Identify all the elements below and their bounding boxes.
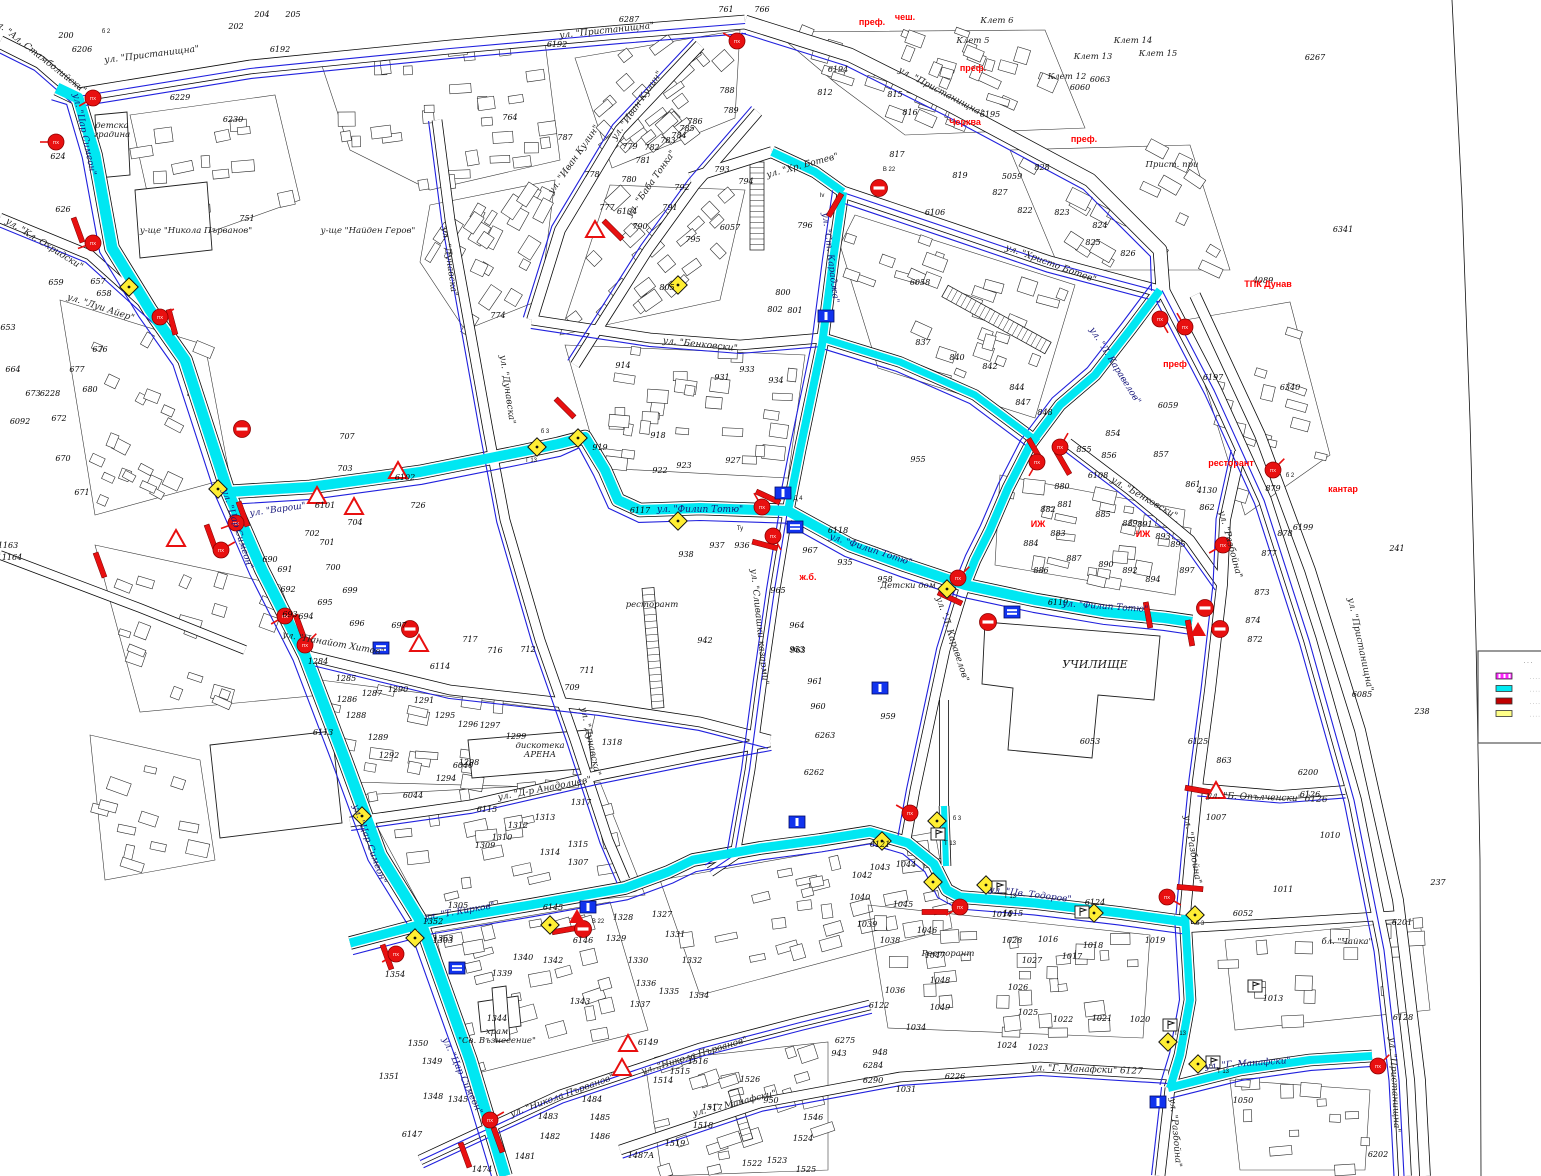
symbol-code-label: б 2 [102, 29, 111, 35]
parcel-number: 1310 [492, 833, 512, 842]
parcel-number: 6040 [453, 761, 473, 770]
landmark-label: бл. "Чайка" [1321, 936, 1372, 947]
parcel-number: 937 [709, 541, 725, 550]
parcel-number: 1524 [793, 1134, 813, 1143]
parcel-number: 677 [69, 365, 85, 374]
parcel-number: 793 [714, 165, 729, 174]
parcel-number: 204 [253, 10, 269, 19]
parcel-number: 1327 [652, 910, 673, 919]
parcel-number: 938 [678, 550, 693, 559]
parcel-number: 931 [714, 373, 729, 382]
parcel-number: 914 [615, 361, 630, 370]
sluice-icon [1004, 606, 1020, 618]
parcel-number: 6229 [170, 93, 190, 102]
parcel-number: 1330 [628, 956, 648, 965]
parcel-number: 1050 [1233, 1096, 1253, 1105]
annotation-label: кантар [1328, 484, 1358, 494]
parcel-number: 704 [347, 518, 362, 527]
parcel-number: 874 [1245, 616, 1260, 625]
parcel-number: 1023 [1028, 1043, 1048, 1052]
hydrant-label: ПХ [770, 534, 776, 539]
building-outline [210, 731, 342, 838]
hydrant-label: ПХ [1182, 325, 1188, 330]
parcel-number: 701 [319, 538, 334, 547]
hydrant-label: ПХ [218, 548, 224, 553]
parcel-number: 5059 [1002, 172, 1022, 181]
annotation-label: преф. [859, 17, 885, 27]
parcel-number: 894 [1145, 575, 1160, 584]
parcel-number: 1314 [540, 848, 560, 857]
parcel-number: 790 [632, 222, 647, 231]
parcel-number: 6192 [547, 40, 567, 49]
hydrant-label: ПХ [1270, 468, 1276, 473]
parcel-number: 6106 [925, 208, 945, 217]
annotation-label: ресторант [1208, 458, 1254, 468]
parcel-number: 1019 [1145, 936, 1165, 945]
parcel-number: 1514 [653, 1076, 673, 1085]
parcel-number: 828 [1034, 163, 1049, 172]
parcel-number: 1046 [917, 926, 937, 935]
parcel-number: 1013 [1263, 994, 1283, 1003]
parcel-number: 707 [339, 432, 355, 441]
symbol-code-label: б 3 [541, 429, 550, 435]
parcel-number: 844 [1009, 383, 1024, 392]
parcel-number: 812 [817, 88, 832, 97]
legend-swatch [1496, 686, 1512, 692]
annotation-label: ТПК Дунав [1244, 279, 1292, 289]
parcel-number: 1350 [408, 1039, 428, 1048]
hydrant-label: ПХ [1034, 460, 1040, 465]
parcel-number: 847 [1015, 398, 1031, 407]
parcel-number: 6063 [1090, 75, 1110, 84]
landmark-label: у-ще "Никола Първанов" [139, 226, 252, 236]
parcel-number: 791 [662, 203, 677, 212]
parcel-number: 960 [810, 702, 825, 711]
parcel-number: 1332 [682, 956, 702, 965]
parcel-number: 1022 [1053, 1015, 1073, 1024]
parcel-number: 948 [872, 1048, 887, 1057]
parcel-number: 6194 [828, 65, 848, 74]
parcel-number: 1526 [740, 1075, 760, 1084]
landmark-label: Клет 15 [1138, 49, 1178, 59]
hydrant-label: ПХ [955, 576, 961, 581]
parcel-number: 696 [349, 619, 364, 628]
parcel-number: 700 [325, 563, 340, 572]
parcel-number: 923 [676, 461, 691, 470]
parcel-number: 1482 [540, 1132, 560, 1141]
legend-swatch [1496, 698, 1512, 704]
parcel-number: 6275 [835, 1036, 855, 1045]
parcel-number: 1329 [606, 934, 626, 943]
parcel-number: 837 [915, 338, 931, 347]
parcel-number: 672 [51, 414, 66, 423]
parcel-number: 6125 [1188, 737, 1208, 746]
parcel-number: 1007 [1206, 813, 1227, 822]
parcel-number: 6284 [863, 1061, 883, 1070]
parcel-number: 1522 [742, 1159, 762, 1168]
annotation-label: Черква [949, 117, 982, 127]
parcel-number: 6340 [1280, 383, 1300, 392]
parcel-number: 1343 [570, 997, 590, 1006]
parcel-number: 6262 [804, 768, 824, 777]
annotation-label: преф. [1071, 134, 1097, 144]
parcel-number: 1034 [906, 1023, 926, 1032]
parcel-number: 709 [564, 683, 579, 692]
parcel-number: 854 [1105, 429, 1120, 438]
parcel-number: 6121 [870, 840, 890, 849]
parcel-number: 673 [25, 389, 40, 398]
parcel-number: 697 [391, 621, 407, 630]
parcel-number: 1328 [613, 913, 633, 922]
hydrant-label: ПХ [90, 241, 96, 246]
parcel-number: 884 [1023, 539, 1038, 548]
parcel-number: 1040 [850, 893, 870, 902]
parcel-number: 664 [5, 365, 20, 374]
symbol-code-label: В 22 [592, 919, 605, 925]
parcel-number: 1291 [414, 696, 434, 705]
parcel-number: 882 [1040, 505, 1055, 514]
parcel-number: 1049 [930, 1003, 950, 1012]
parcel-number: 1339 [492, 969, 512, 978]
legend-entry-label: . . . . . [1530, 688, 1541, 694]
hydrant-label: ПХ [1157, 317, 1163, 322]
parcel-number: 890 [1098, 560, 1113, 569]
parcel-number: 934 [768, 376, 783, 385]
landmark-label: Клет 14 [1113, 36, 1153, 46]
parcel-number: 1288 [346, 711, 366, 720]
parcel-number: 1017 [1062, 952, 1083, 961]
parcel-number: 816 [902, 108, 917, 117]
parcel-number: 943 [831, 1049, 846, 1058]
legend-entry-label: . . . . . [1530, 713, 1541, 719]
parcel-number: 922 [652, 466, 667, 475]
parcel-number: 676 [92, 345, 107, 354]
parcel-number: 1349 [422, 1057, 442, 1066]
parcel-number: 805 [659, 283, 674, 292]
symbol-code-label: б 3 [1196, 921, 1205, 927]
annotation-label: преф [1163, 359, 1187, 369]
parcel-number: 942 [697, 636, 712, 645]
parcel-number: 819 [952, 171, 967, 180]
parcel-number: 6044 [403, 791, 423, 800]
parcel-number: 919 [592, 443, 607, 452]
parcel-number: 1163 [0, 541, 18, 550]
parcel-number: 880 [1054, 482, 1069, 491]
annotation-label: ИЖ [1031, 519, 1046, 529]
parcel-number: 6147 [402, 1130, 423, 1139]
parcel-number: 863 [1216, 756, 1231, 765]
parcel-number: 6053 [1080, 737, 1100, 746]
parcel-number: 1525 [796, 1165, 816, 1174]
parcel-number: 6290 [863, 1076, 883, 1085]
parcel-number: 967 [802, 546, 818, 555]
symbol-code-label: В 22 [883, 167, 896, 173]
parcel-number: 6122 [869, 1001, 889, 1010]
hydrant-label: ПХ [487, 1118, 493, 1123]
parcel-number: 787 [557, 133, 573, 142]
parcel-number: 1011 [1273, 885, 1293, 894]
parcel-number: 6057 [720, 223, 741, 232]
parcel-number: 6226 [945, 1072, 965, 1081]
parcel-number: 670 [55, 454, 70, 463]
parcel-number: 6102 [395, 473, 415, 482]
parcel-number: 1284 [308, 657, 328, 666]
parcel-number: 1318 [602, 738, 622, 747]
symbol-code-label: Т 13 [525, 458, 538, 464]
parcel-number: 1313 [535, 813, 555, 822]
hydrant-label: ПХ [157, 315, 163, 320]
parcel-number: 712 [520, 645, 535, 654]
parcel-number: 1027 [1022, 956, 1043, 965]
landmark-label: детскаградина [94, 121, 130, 140]
parcel-number: 961 [807, 677, 822, 686]
parcel-number: 1038 [880, 936, 900, 945]
parcel-number: 877 [1261, 549, 1277, 558]
parcel-number: 626 [55, 205, 70, 214]
parcel-number: 671 [74, 488, 89, 497]
parcel-number: 1518 [693, 1121, 713, 1130]
parcel-number: 1031 [896, 1085, 916, 1094]
parcel-number: 1335 [659, 987, 679, 996]
landmark-label: Клет 6 [979, 16, 1014, 26]
parcel-number: 6197 [1203, 373, 1224, 382]
parcel-number: 716 [487, 646, 502, 655]
parcel-number: 717 [462, 635, 478, 644]
parcel-number: 815 [887, 90, 902, 99]
parcel-number: 1042 [852, 871, 872, 880]
parcel-number: 1025 [1018, 1008, 1038, 1017]
symbol-code-label: Т 13 [1004, 894, 1017, 900]
parcel-number: 1299 [506, 732, 526, 741]
annotation-label: преф. [960, 63, 986, 73]
parcel-number: 6206 [72, 45, 92, 54]
parcel-number: 1351 [379, 1072, 399, 1081]
parcel-number: 792 [674, 183, 689, 192]
parcel-number: 1483 [538, 1112, 558, 1121]
parcel-number: 857 [1153, 450, 1169, 459]
landmark-label: Ресторант [921, 949, 975, 959]
legend: . . .. . . . .. . . . .. . . . .. . . . … [1478, 651, 1541, 743]
parcel-number: 1036 [885, 986, 905, 995]
parcel-number: 1353 [433, 934, 453, 943]
parcel-number: 795 [685, 235, 700, 244]
parcel-number: 6149 [638, 1038, 658, 1047]
parcel-number: 1523 [767, 1156, 787, 1165]
parcel-number: 788 [719, 86, 734, 95]
parcel-number: 6060 [1070, 83, 1090, 92]
parcel-number: 1546 [803, 1113, 823, 1122]
parcel-number: 1044 [896, 860, 916, 869]
parcel-number: 1474 [472, 1165, 492, 1174]
parcel-number: 624 [50, 152, 65, 161]
legend-entry-label: . . . . . [1530, 675, 1541, 681]
parcel-number: 1020 [1130, 1015, 1150, 1024]
parcel-number: 885 [1095, 510, 1110, 519]
parcel-number: 802 [767, 305, 782, 314]
parcel-number: 1484 [582, 1095, 602, 1104]
parcel-number: 703 [337, 464, 352, 473]
parcel-number: 848 [1037, 408, 1052, 417]
parcel-number: 1290 [388, 685, 408, 694]
parcel-number: 1026 [1008, 983, 1028, 992]
hydrant-type-icon [1163, 1019, 1177, 1031]
parcel-number: 1039 [857, 920, 877, 929]
parcel-number: 1344 [487, 1014, 507, 1023]
parcel-number: 6146 [573, 936, 593, 945]
parcel-number: 1010 [1320, 831, 1340, 840]
symbol-code-label: б 3 [953, 816, 962, 822]
parcel-number: 6124 [1085, 898, 1105, 907]
parcel-number: 6114 [430, 662, 450, 671]
landmark-label: Детски дом [879, 581, 936, 591]
parcel-number: 893 [1155, 532, 1170, 541]
parcel-number: 823 [1054, 208, 1069, 217]
parcel-number: 764 [502, 113, 517, 122]
parcel-number: 840 [949, 353, 964, 362]
parcel-number: 1018 [1083, 941, 1103, 950]
map-sheet: ПХПХПХПХПХПХПХПХПХПХПХПХПХПХПХПХПХПХПХПХ… [0, 0, 1541, 1176]
parcel-number: 873 [1254, 588, 1269, 597]
parcel-number: 200 [57, 31, 73, 40]
sluice-icon [787, 521, 803, 533]
parcel-number: 653 [0, 323, 15, 332]
parcel-number: 1286 [337, 695, 357, 704]
parcel-number: 933 [739, 365, 754, 374]
hydrant-type-icon [931, 828, 945, 840]
landmark-label: УЧИЛИЩЕ [1062, 658, 1127, 671]
parcel-number: 1342 [543, 956, 563, 965]
parcel-number: 778 [584, 170, 599, 179]
parcel-number: 780 [621, 175, 636, 184]
parcel-number: 238 [1413, 707, 1429, 716]
hydrant-type-icon [1248, 980, 1262, 992]
parcel-number: 711 [579, 666, 594, 675]
landmark-label: у-ще "Найден Геров" [320, 226, 416, 236]
parcel-number: 1345 [448, 1095, 468, 1104]
parcel-number: 777 [599, 203, 615, 212]
parcel-number: 1307 [568, 858, 589, 867]
parcel-number: 879 [1265, 484, 1280, 493]
parcel-number: 822 [1017, 206, 1032, 215]
parcel-number: 6263 [815, 731, 835, 740]
parcel-number: 1312 [508, 821, 528, 830]
parcel-number: 6058 [910, 278, 930, 287]
parcel-number: 1485 [590, 1113, 610, 1122]
annotation-label: ИЖ [1136, 529, 1151, 539]
parcel-number: 6200 [1298, 768, 1318, 777]
parcel-number: 817 [889, 150, 905, 159]
parcel-number: 1340 [513, 953, 533, 962]
parcel-number: 1317 [571, 798, 592, 807]
parcel-number: 1016 [1038, 935, 1058, 944]
parcel-number: 1043 [870, 863, 890, 872]
parcel-number: 955 [910, 455, 925, 464]
parcel-number: 6108 [1088, 471, 1108, 480]
parcel-number: 761 [718, 5, 733, 14]
parcel-number: 862 [1199, 503, 1214, 512]
parcel-number: 1287 [362, 689, 383, 698]
parcel-number: 935 [837, 558, 852, 567]
hydrant-label: ПХ [759, 505, 765, 510]
parcel-number: 887 [1066, 554, 1082, 563]
parcel-number: 726 [410, 501, 425, 510]
parcel-number: 1285 [336, 674, 356, 683]
sluice-icon [449, 962, 465, 974]
symbol-code-label: Т 13 [1174, 1031, 1187, 1037]
parcel-number: 1315 [568, 840, 588, 849]
parcel-number: 205 [284, 10, 300, 19]
parcel-number: 786 [687, 117, 702, 126]
parcel-number: 1519 [665, 1139, 685, 1148]
parcel-number: 1164 [2, 553, 22, 562]
parcel-number: 1486 [590, 1132, 610, 1141]
parcel-number: 6230 [223, 115, 243, 124]
parcel-number: 897 [1179, 566, 1195, 575]
parcel-number: 692 [280, 585, 295, 594]
parcel-number: 789 [723, 106, 738, 115]
symbol-code-label: Т 13 [944, 841, 957, 847]
parcel-number: 1289 [368, 733, 388, 742]
landmark-label: ресторант [626, 600, 679, 610]
parcel-number: 6199 [1293, 523, 1313, 532]
parcel-number: 751 [239, 214, 254, 223]
parcel-number: 782 [644, 143, 659, 152]
parcel-number: 658 [96, 289, 111, 298]
landmark-label: Клет 13 [1073, 52, 1113, 62]
symbol-code-label: Ту [737, 526, 743, 532]
parcel-number: 883 [1050, 529, 1065, 538]
parcel-number: 781 [635, 156, 650, 165]
parcel-number: 779 [622, 142, 637, 151]
parcel-number: 889 [1122, 519, 1137, 528]
parcel-number: 927 [725, 456, 741, 465]
parcel-number: 6101 [315, 501, 335, 510]
hydrant-label: ПХ [90, 96, 96, 101]
parcel-number: 959 [880, 712, 895, 721]
parcel-number: 6267 [1305, 53, 1326, 62]
parcel-number: 693 [282, 610, 297, 619]
parcel-number: 1015 [1003, 909, 1023, 918]
map-canvas[interactable]: ПХПХПХПХПХПХПХПХПХПХПХПХПХПХПХПХПХПХПХПХ… [0, 0, 1541, 1176]
parcel-number: 6145 [543, 903, 563, 912]
parcel-number: 1487А [628, 1151, 654, 1160]
parcel-number: 1337 [630, 1000, 651, 1009]
parcel-number: 794 [738, 177, 753, 186]
parcel-number: 6113 [313, 728, 333, 737]
parcel-number: 6341 [1333, 225, 1353, 234]
parcel-number: 965 [770, 586, 785, 595]
parcel-number: 766 [754, 5, 769, 14]
parcel-number: 1336 [636, 979, 656, 988]
parcel-number: 694 [298, 612, 313, 621]
parcel-number: 659 [48, 278, 63, 287]
symbol-code-label: Т 13 [1217, 1069, 1230, 1075]
parcel-number: 690 [262, 555, 277, 564]
parcel-number: 1334 [689, 991, 709, 1000]
parcel-number: 1297 [480, 721, 501, 730]
hydrant-type-icon [1075, 906, 1089, 918]
parcel-number: 237 [1429, 878, 1446, 887]
legend-note: . . . [1524, 659, 1533, 665]
parcel-number: 702 [304, 529, 319, 538]
parcel-number: 1354 [385, 970, 405, 979]
parcel-number: 878 [1277, 529, 1292, 538]
parcel-number: 872 [1247, 635, 1262, 644]
parcel-number: 6228 [40, 389, 60, 398]
symbol-code-label: Iv [820, 193, 825, 199]
legend-swatch [1496, 711, 1512, 717]
parcel-number: 680 [82, 385, 97, 394]
